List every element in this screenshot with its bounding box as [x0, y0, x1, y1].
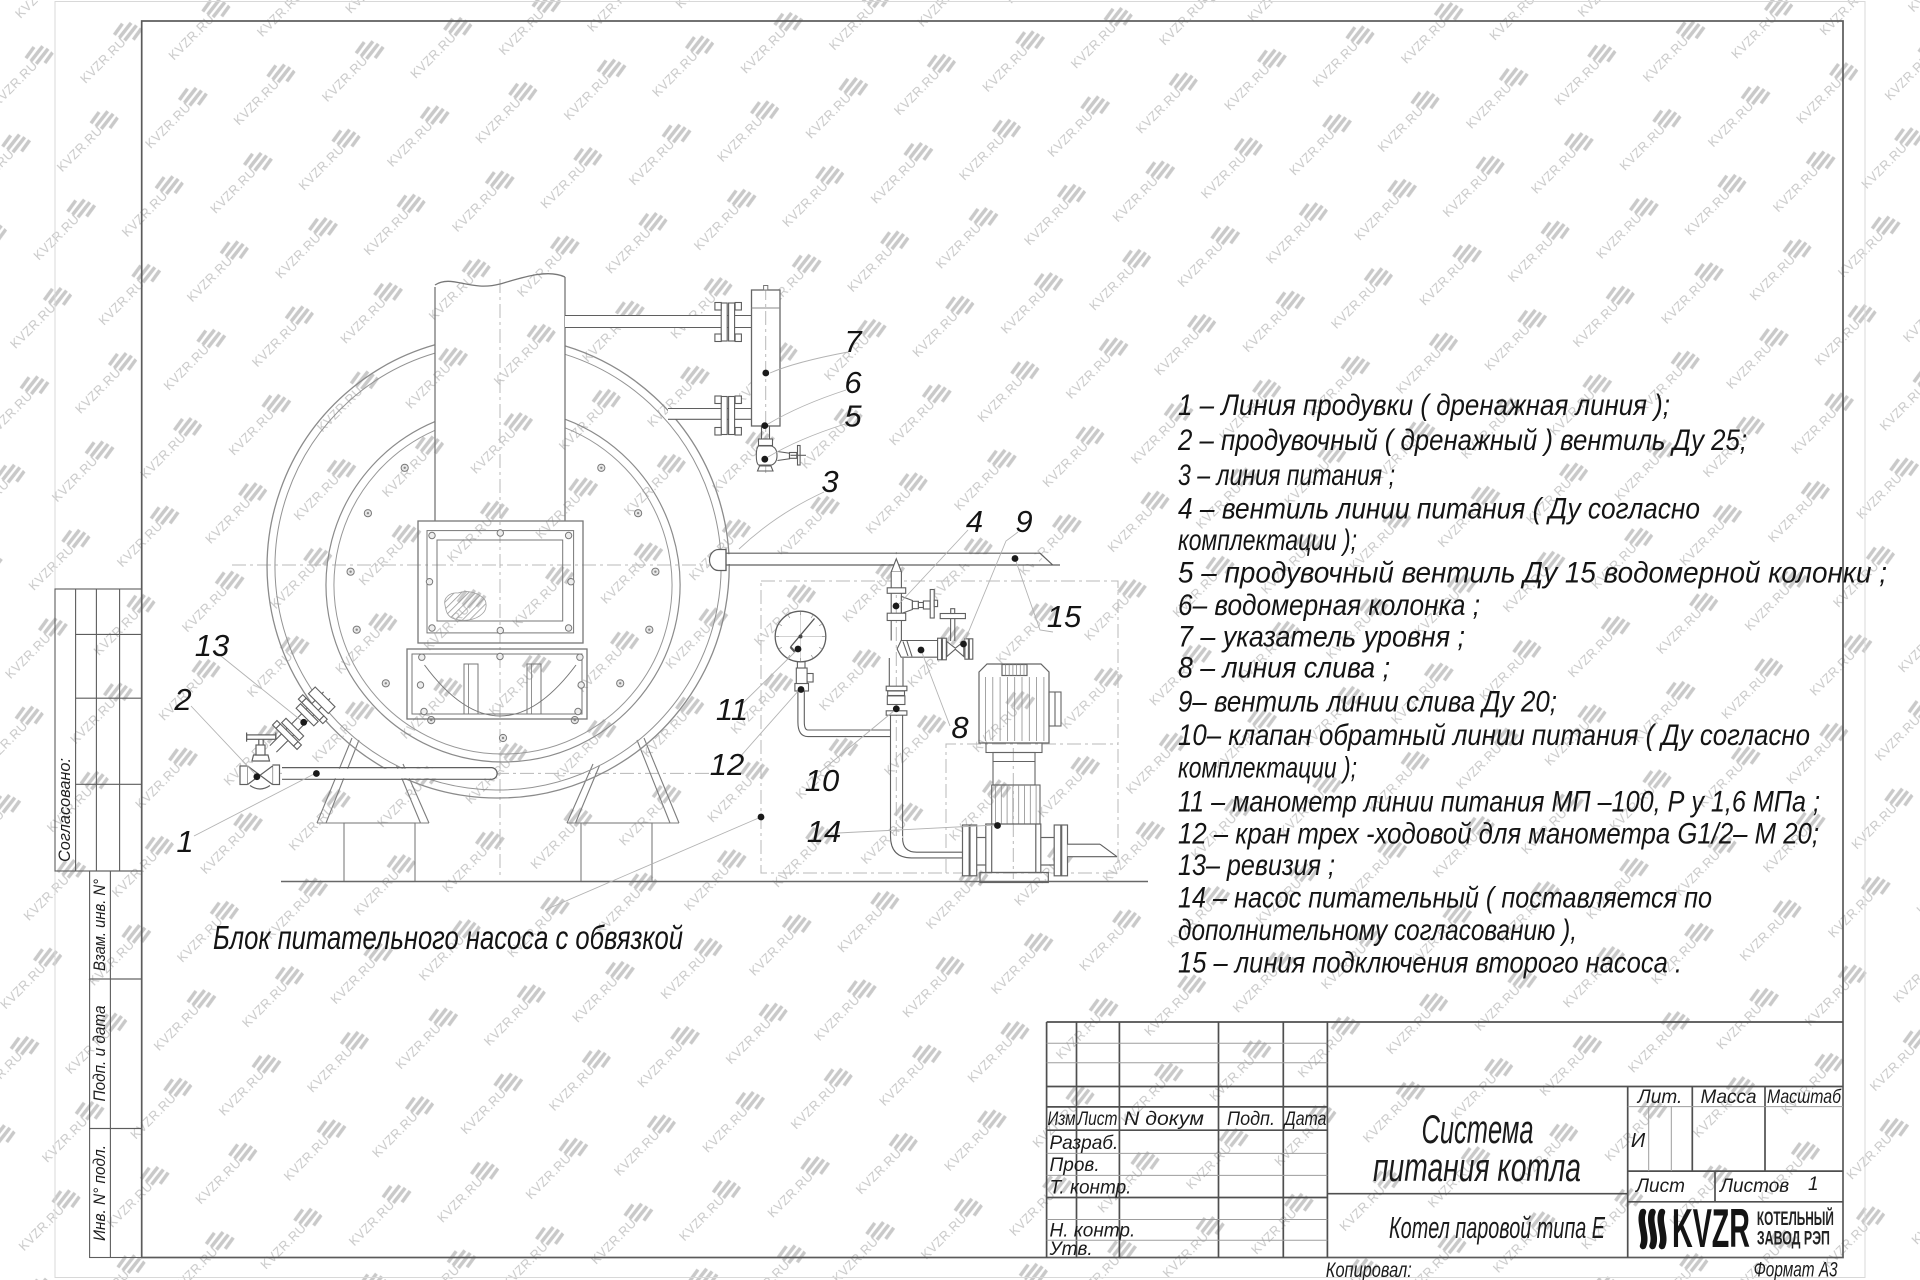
svg-text:7 – указатель уровня ;: 7 – указатель уровня ;	[1178, 621, 1465, 654]
svg-text:Масса: Масса	[1701, 1087, 1757, 1108]
svg-text:4: 4	[966, 504, 983, 539]
svg-text:Масштаб: Масштаб	[1767, 1087, 1842, 1108]
svg-text:15 – линия подключения второг: 15 – линия подключения второго насоса .	[1178, 947, 1682, 980]
svg-text:Лист: Лист	[1076, 1109, 1118, 1130]
svg-text:9– вентиль линии слива Ду 20: 9– вентиль линии слива Ду 20;	[1178, 686, 1557, 719]
svg-text:КОТЕЛЬНЫЙ: КОТЕЛЬНЫЙ	[1757, 1208, 1834, 1230]
svg-text:10– клапан обратный линии пит: 10– клапан обратный линии питания ( Ду с…	[1178, 719, 1810, 752]
svg-text:Блок питательного насоса с обв: Блок питательного насоса с обвязкой	[213, 919, 683, 956]
svg-text:8 – линия слива ;: 8 – линия слива ;	[1178, 652, 1390, 685]
svg-text:Дата: Дата	[1283, 1109, 1327, 1130]
svg-text:Утв.: Утв.	[1049, 1239, 1093, 1260]
svg-text:Пров.: Пров.	[1050, 1155, 1100, 1176]
svg-text:Формат А3: Формат А3	[1754, 1259, 1838, 1280]
svg-text:И: И	[1631, 1130, 1646, 1152]
svg-text:11 – манометр линии питания М: 11 – манометр линии питания МП –100, Р у…	[1178, 786, 1820, 819]
svg-text:Согласовано:: Согласовано:	[55, 758, 74, 862]
svg-text:1 – Линия продувки ( дренажн: 1 – Линия продувки ( дренажная линия );	[1178, 389, 1670, 422]
svg-text:3: 3	[821, 464, 838, 499]
svg-text:5 – продувочный вентиль Ду 15: 5 – продувочный вентиль Ду 15 водомерной…	[1178, 557, 1887, 590]
svg-text:2: 2	[173, 682, 191, 717]
svg-text:4 – вентиль линии питания (: 4 – вентиль линии питания ( Ду согласно	[1178, 493, 1700, 526]
svg-text:14: 14	[807, 814, 841, 849]
svg-text:питания котла: питания котла	[1373, 1146, 1581, 1190]
svg-text:10: 10	[805, 763, 839, 798]
svg-text:N докум: N докум	[1124, 1109, 1204, 1130]
svg-text:1: 1	[176, 824, 193, 859]
svg-text:12 – кран трех -ходовой для м: 12 – кран трех -ходовой для манометра G1…	[1178, 818, 1819, 851]
svg-text:6– водомерная колонка ;: 6– водомерная колонка ;	[1178, 589, 1480, 622]
svg-text:5: 5	[844, 399, 862, 434]
svg-text:Разраб.: Разраб.	[1050, 1133, 1119, 1154]
svg-text:12: 12	[710, 747, 744, 782]
svg-text:11: 11	[716, 692, 748, 727]
svg-text:7: 7	[844, 324, 863, 359]
svg-text:6: 6	[844, 365, 862, 400]
svg-text:Лит.: Лит.	[1636, 1087, 1683, 1108]
svg-text:Изм: Изм	[1048, 1109, 1076, 1130]
svg-text:13– ревизия ;: 13– ревизия ;	[1178, 849, 1335, 882]
svg-text:дополнительному согласованию ): дополнительному согласованию ),	[1178, 914, 1577, 947]
svg-text:Подп.: Подп.	[1227, 1109, 1275, 1130]
svg-text:комплектации );: комплектации );	[1178, 524, 1357, 557]
svg-text:Копировал:: Копировал:	[1326, 1259, 1412, 1280]
svg-text:Т. контр.: Т. контр.	[1050, 1178, 1132, 1199]
svg-text:9: 9	[1015, 504, 1032, 539]
svg-text:комплектации );: комплектации );	[1178, 752, 1357, 785]
svg-text:Взам. инв. N°: Взам. инв. N°	[90, 879, 109, 971]
svg-text:2 – продувочный ( дренажный: 2 – продувочный ( дренажный ) вентиль Ду…	[1177, 424, 1747, 457]
svg-text:14 – насос питательный ( пос: 14 – насос питательный ( поставляется по	[1178, 882, 1712, 915]
svg-text:Лист: Лист	[1634, 1176, 1685, 1197]
svg-text:KVZR: KVZR	[1672, 1197, 1750, 1259]
svg-text:Листов: Листов	[1718, 1176, 1789, 1197]
svg-text:15: 15	[1047, 599, 1082, 634]
svg-text:13: 13	[195, 628, 229, 663]
svg-text:ЗАВОД РЭП: ЗАВОД РЭП	[1757, 1229, 1830, 1250]
svg-text:8: 8	[951, 710, 969, 745]
svg-text:3 – линия питания ;: 3 – линия питания ;	[1178, 459, 1395, 492]
svg-text:1: 1	[1808, 1174, 1819, 1195]
svg-text:Подп. и дата: Подп. и дата	[90, 1006, 109, 1102]
svg-text:Котел паровой типа Е: Котел паровой типа Е	[1389, 1210, 1605, 1245]
svg-text:Инв. N° подл.: Инв. N° подл.	[90, 1145, 109, 1241]
